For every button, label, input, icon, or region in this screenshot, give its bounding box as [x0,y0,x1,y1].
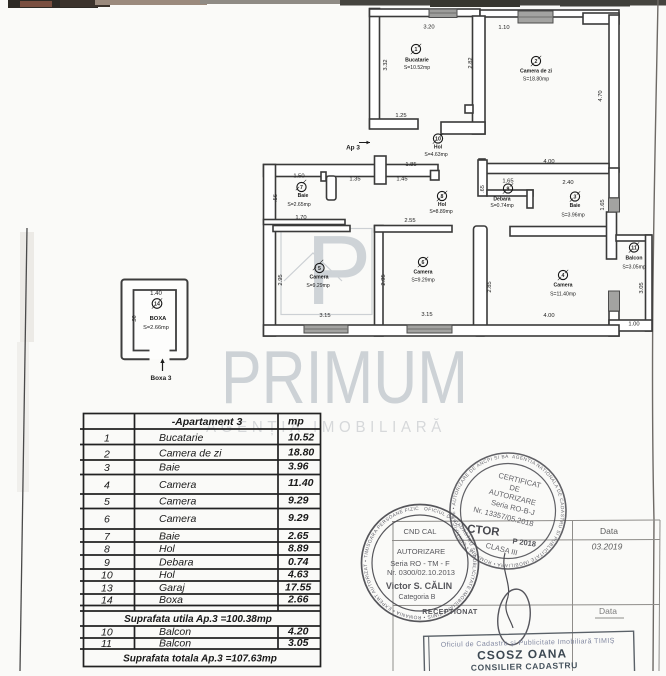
svg-text:S=18.80mp: S=18.80mp [523,77,549,83]
svg-text:4: 4 [562,273,565,279]
svg-text:.90: .90 [132,315,138,322]
svg-text:10: 10 [101,627,113,639]
svg-text:Balcon: Balcon [626,256,643,262]
svg-text:Bucatarie: Bucatarie [405,58,429,64]
svg-text:03.2019: 03.2019 [592,542,623,552]
svg-text:1.25: 1.25 [395,113,406,119]
svg-text:.65: .65 [480,185,486,193]
svg-text:14: 14 [101,595,113,607]
svg-text:4.70: 4.70 [598,90,604,101]
svg-text:9.29: 9.29 [288,512,309,524]
svg-text:S=11.40mp: S=11.40mp [550,292,576,298]
svg-text:2.55: 2.55 [404,218,415,224]
svg-text:17.55: 17.55 [285,582,311,594]
svg-text:PRIMUM: PRIMUM [221,335,468,419]
svg-text:2: 2 [535,59,538,65]
svg-text:1.10: 1.10 [498,25,509,31]
svg-text:Debara: Debara [493,197,510,203]
svg-text:10: 10 [435,137,441,143]
svg-text:5: 5 [104,496,110,508]
svg-text:1: 1 [415,47,418,53]
svg-text:3: 3 [574,195,577,201]
svg-text:Camera: Camera [159,513,197,525]
svg-text:Camera: Camera [309,275,328,281]
svg-text:6: 6 [422,260,425,266]
svg-text:1.65: 1.65 [502,179,513,185]
svg-text:Hol: Hol [438,202,447,208]
svg-text:CND CAL: CND CAL [404,527,437,536]
svg-text:Suprafata utila Ap.3 =100.38mp: Suprafata utila Ap.3 =100.38mp [124,614,272,625]
svg-text:2.66: 2.66 [287,594,309,606]
svg-text:6: 6 [104,514,110,526]
svg-text:3.05: 3.05 [288,637,309,649]
svg-text:Camera de zi: Camera de zi [159,448,222,460]
svg-text:Camera: Camera [159,496,197,508]
svg-text:Hol: Hol [434,145,443,151]
svg-text:Baie: Baie [159,462,180,474]
svg-text:Hol: Hol [159,569,175,581]
svg-text:Data: Data [600,526,618,536]
svg-text:1.00: 1.00 [628,322,639,328]
svg-text:4.00: 4.00 [543,159,554,165]
svg-text:S=3.05mp: S=3.05mp [622,265,646,271]
svg-text:Categoria B: Categoria B [399,594,436,601]
svg-text:4.63: 4.63 [287,569,309,581]
svg-text:11: 11 [631,246,637,252]
svg-text:Camera: Camera [413,270,432,276]
svg-text:4: 4 [104,480,110,492]
svg-text:9: 9 [104,557,110,569]
svg-text:Ap 3: Ap 3 [346,145,360,152]
svg-text:Suprafata totala Ap.3 =107.63m: Suprafata totala Ap.3 =107.63mp [123,654,277,665]
svg-text:S=9.29mp: S=9.29mp [411,278,435,284]
svg-text:2: 2 [103,449,110,461]
svg-text:Boxa 3: Boxa 3 [151,375,172,382]
svg-text:3.15: 3.15 [421,312,432,318]
svg-text:3.96: 3.96 [288,461,309,473]
svg-text:Baie: Baie [159,531,180,543]
svg-text:Hol: Hol [159,543,175,555]
svg-text:Balcon: Balcon [159,638,191,650]
svg-text:BOXA: BOXA [150,316,168,322]
svg-text:2.95: 2.95 [381,274,387,285]
svg-text:1.45: 1.45 [396,177,407,183]
svg-text:1.50: 1.50 [293,174,304,180]
svg-text:RECEPTIONAT: RECEPTIONAT [422,607,478,616]
svg-text:9: 9 [507,187,510,193]
svg-text:3.32: 3.32 [383,59,389,70]
svg-text:3: 3 [104,462,110,474]
svg-text:S=2.66mp: S=2.66mp [143,325,169,331]
svg-text:.56: .56 [273,194,279,202]
svg-text:8: 8 [104,544,110,556]
svg-text:4.00: 4.00 [543,313,554,319]
svg-text:Nr. 0300/02.10.2013: Nr. 0300/02.10.2013 [387,568,455,577]
svg-text:2.95: 2.95 [278,274,284,285]
svg-text:14: 14 [154,302,160,308]
svg-text:18.80: 18.80 [288,447,314,459]
svg-text:2.85: 2.85 [487,281,493,292]
svg-text:3.15: 3.15 [319,313,330,319]
svg-text:S=4.63mp: S=4.63mp [424,152,448,158]
svg-text:1.35: 1.35 [349,177,360,183]
svg-text:5: 5 [318,266,321,272]
svg-text:1.70: 1.70 [295,215,306,221]
svg-text:4.20: 4.20 [287,626,309,638]
svg-text:7: 7 [300,185,303,191]
svg-text:AUTORIZARE: AUTORIZARE [397,547,445,556]
svg-text:S=9.29mp: S=9.29mp [306,283,330,289]
svg-text:10: 10 [101,570,113,582]
svg-text:-Apartament 3: -Apartament 3 [172,416,243,428]
svg-text:2.82: 2.82 [468,57,474,68]
svg-text:11: 11 [101,638,112,650]
svg-text:Balcon: Balcon [159,626,191,638]
svg-text:11.40: 11.40 [288,477,314,489]
svg-text:S=0.74mp: S=0.74mp [490,203,514,209]
svg-text:Camera de zi: Camera de zi [520,69,553,75]
svg-text:Debara: Debara [159,557,194,569]
svg-text:10.52: 10.52 [288,432,314,444]
svg-text:9.29: 9.29 [288,495,309,507]
svg-text:Boxa: Boxa [159,594,183,606]
svg-text:Baie: Baie [298,193,309,199]
svg-text:3.20: 3.20 [423,25,434,31]
svg-text:2.40: 2.40 [562,180,573,186]
svg-text:8.89: 8.89 [288,543,309,555]
svg-text:Seria RO - TM - F: Seria RO - TM - F [390,559,450,568]
svg-text:S=2.65mp: S=2.65mp [287,202,311,208]
svg-text:S=10.52mp: S=10.52mp [404,65,430,71]
svg-text:3.05: 3.05 [639,282,645,293]
svg-text:1.40: 1.40 [150,291,162,297]
svg-text:1.65: 1.65 [600,199,606,210]
svg-text:1.85: 1.85 [405,162,416,168]
svg-text:2.65: 2.65 [287,530,309,542]
svg-text:Baie: Baie [570,203,581,209]
svg-text:Camera: Camera [159,479,197,491]
svg-text:Bucatarie: Bucatarie [159,432,204,444]
svg-text:Garaj: Garaj [159,582,185,594]
svg-text:mp: mp [288,416,304,428]
svg-text:Victor S. CĂLIN: Victor S. CĂLIN [386,581,452,591]
svg-text:Camera: Camera [553,283,572,289]
svg-text:S=3.96mp: S=3.96mp [561,213,585,219]
svg-text:0.74: 0.74 [288,556,309,568]
svg-text:S=8.89mp: S=8.89mp [429,209,453,215]
svg-text:8: 8 [441,194,444,200]
svg-text:13: 13 [101,583,113,595]
svg-text:CONSILIER CADASTRU: CONSILIER CADASTRU [471,660,578,671]
svg-text:1: 1 [104,433,110,445]
svg-text:Data: Data [599,606,617,616]
